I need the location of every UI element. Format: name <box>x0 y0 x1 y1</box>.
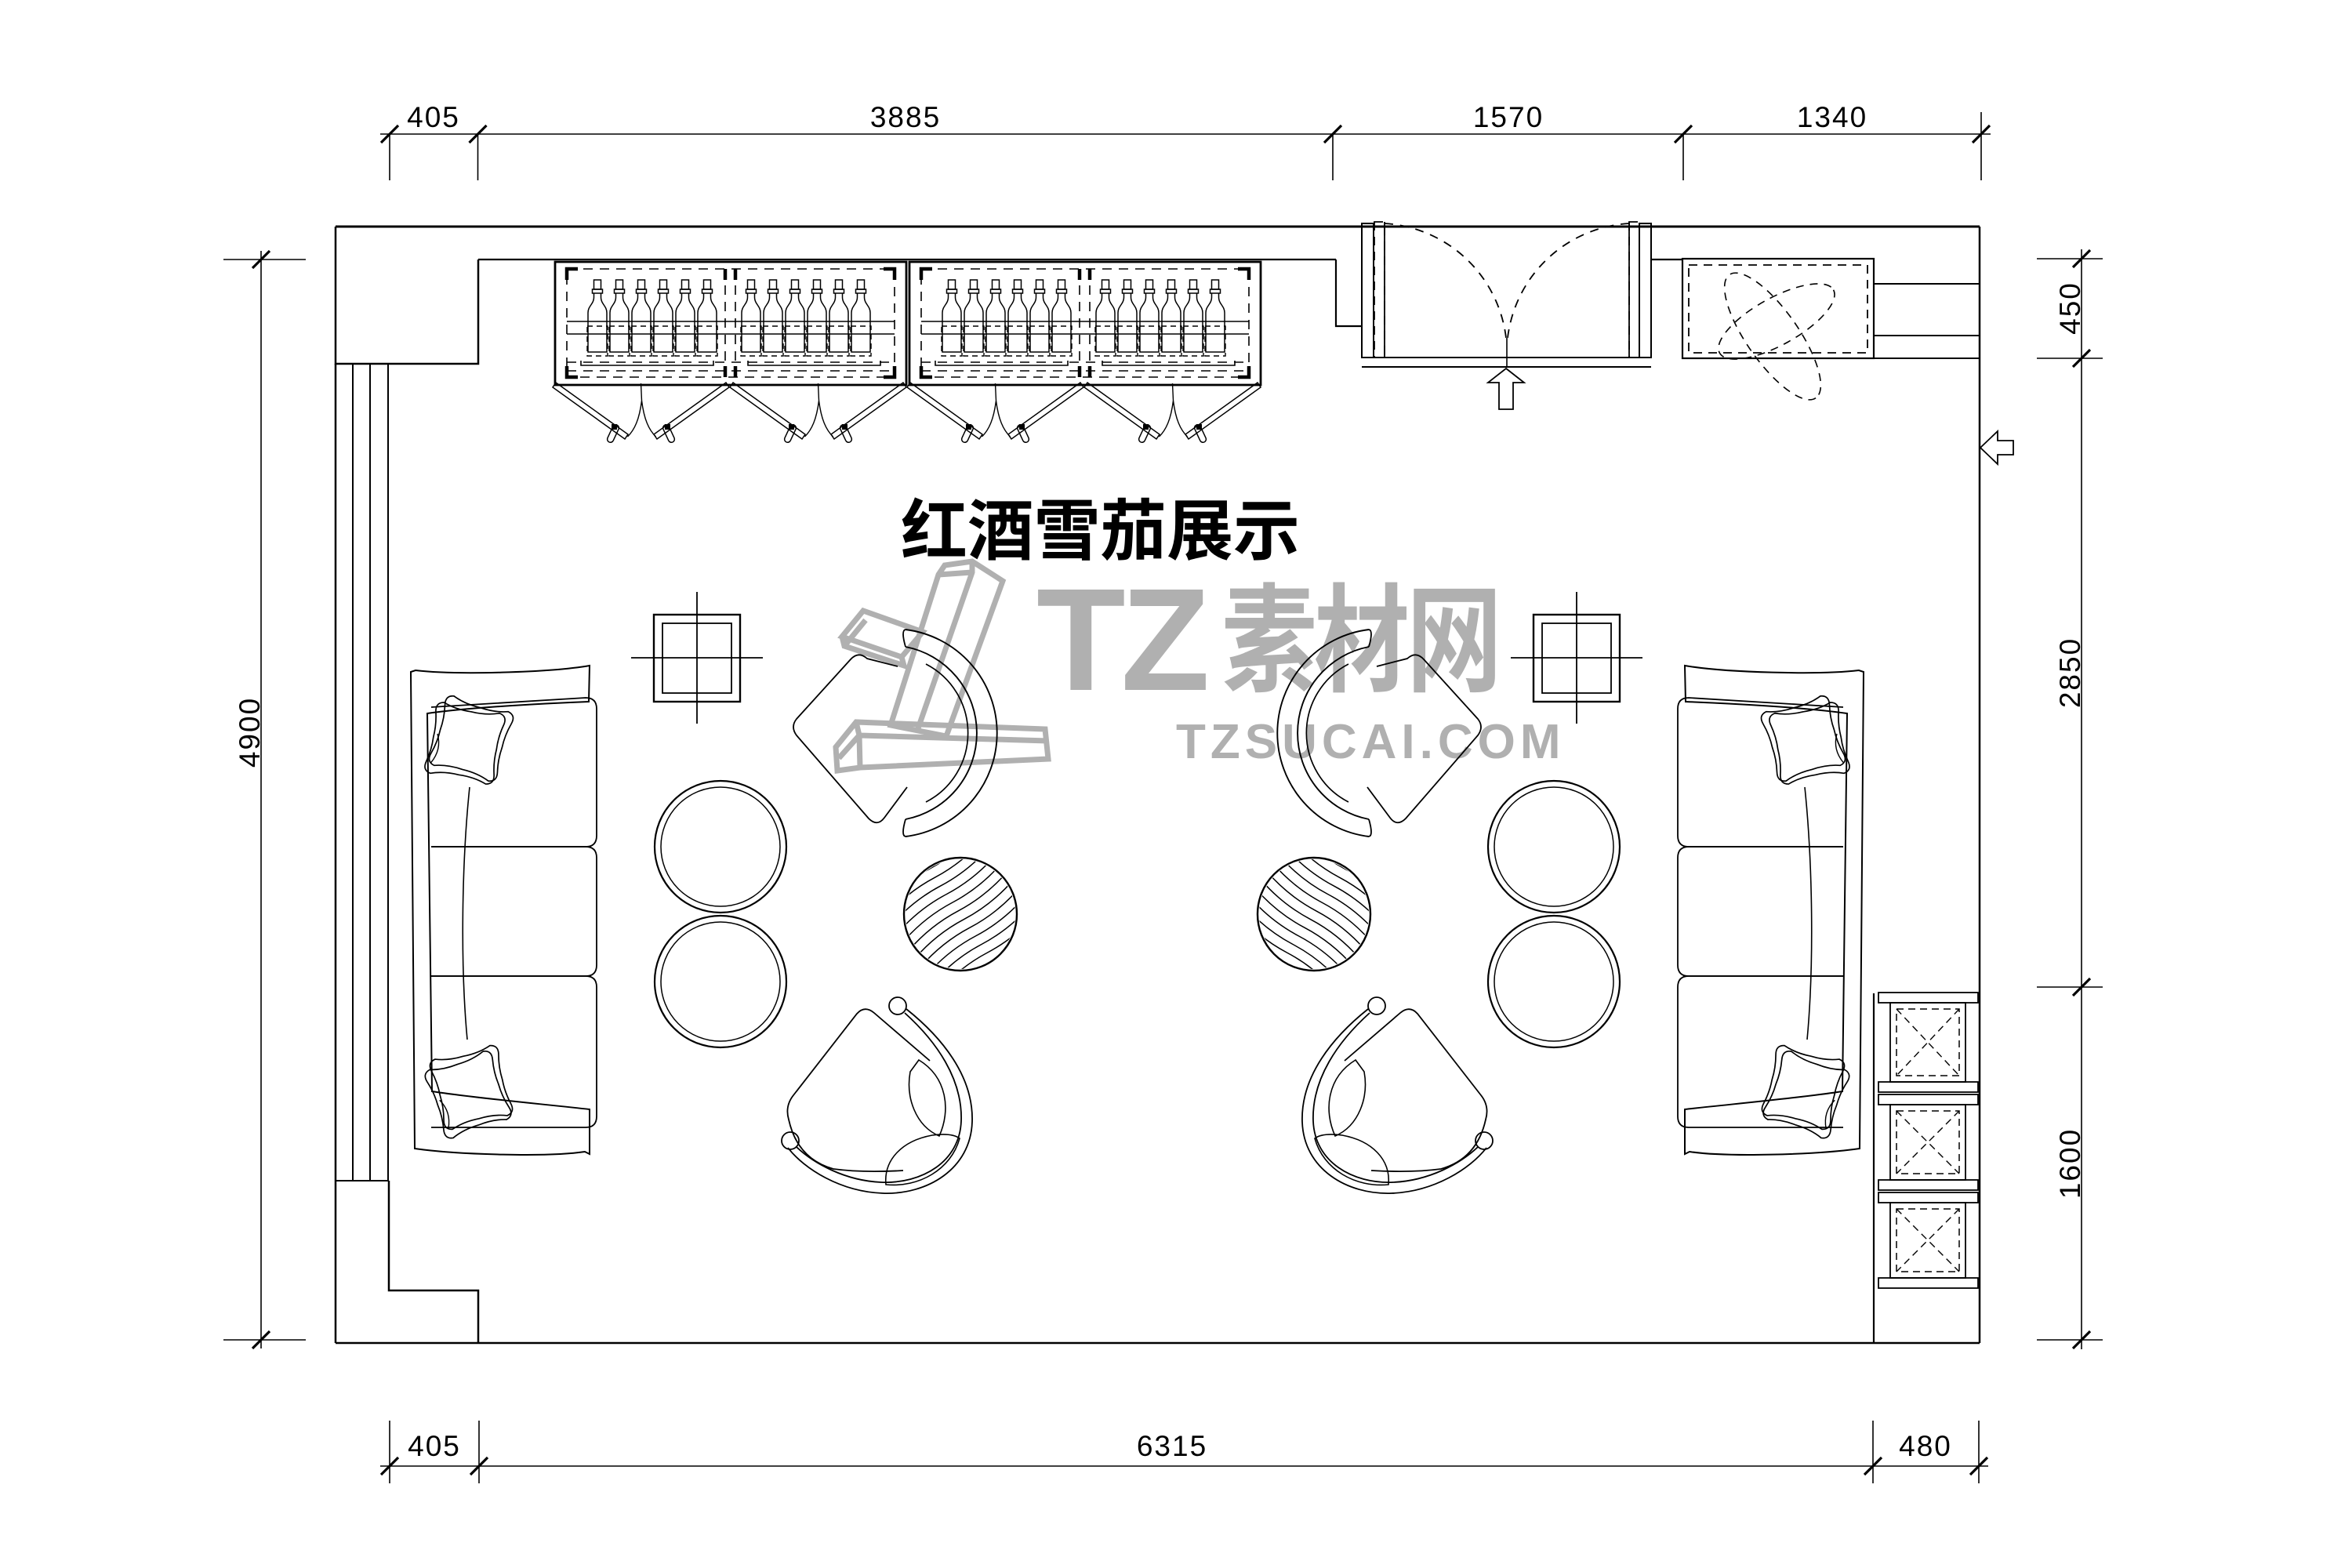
svg-text:1570: 1570 <box>1473 101 1544 133</box>
svg-text:405: 405 <box>407 101 460 133</box>
svg-text:450: 450 <box>2054 281 2086 335</box>
svg-text:TZSUCAI.COM: TZSUCAI.COM <box>1176 715 1566 769</box>
svg-text:4900: 4900 <box>234 697 266 768</box>
svg-text:3885: 3885 <box>870 101 941 133</box>
svg-text:1340: 1340 <box>1797 101 1867 133</box>
svg-text:480: 480 <box>1899 1430 1952 1462</box>
svg-text:6315: 6315 <box>1137 1430 1207 1462</box>
svg-text:405: 405 <box>408 1430 461 1462</box>
svg-text:2850: 2850 <box>2054 637 2086 708</box>
svg-text:1600: 1600 <box>2054 1128 2086 1199</box>
svg-text:TZ: TZ <box>1036 559 1207 721</box>
